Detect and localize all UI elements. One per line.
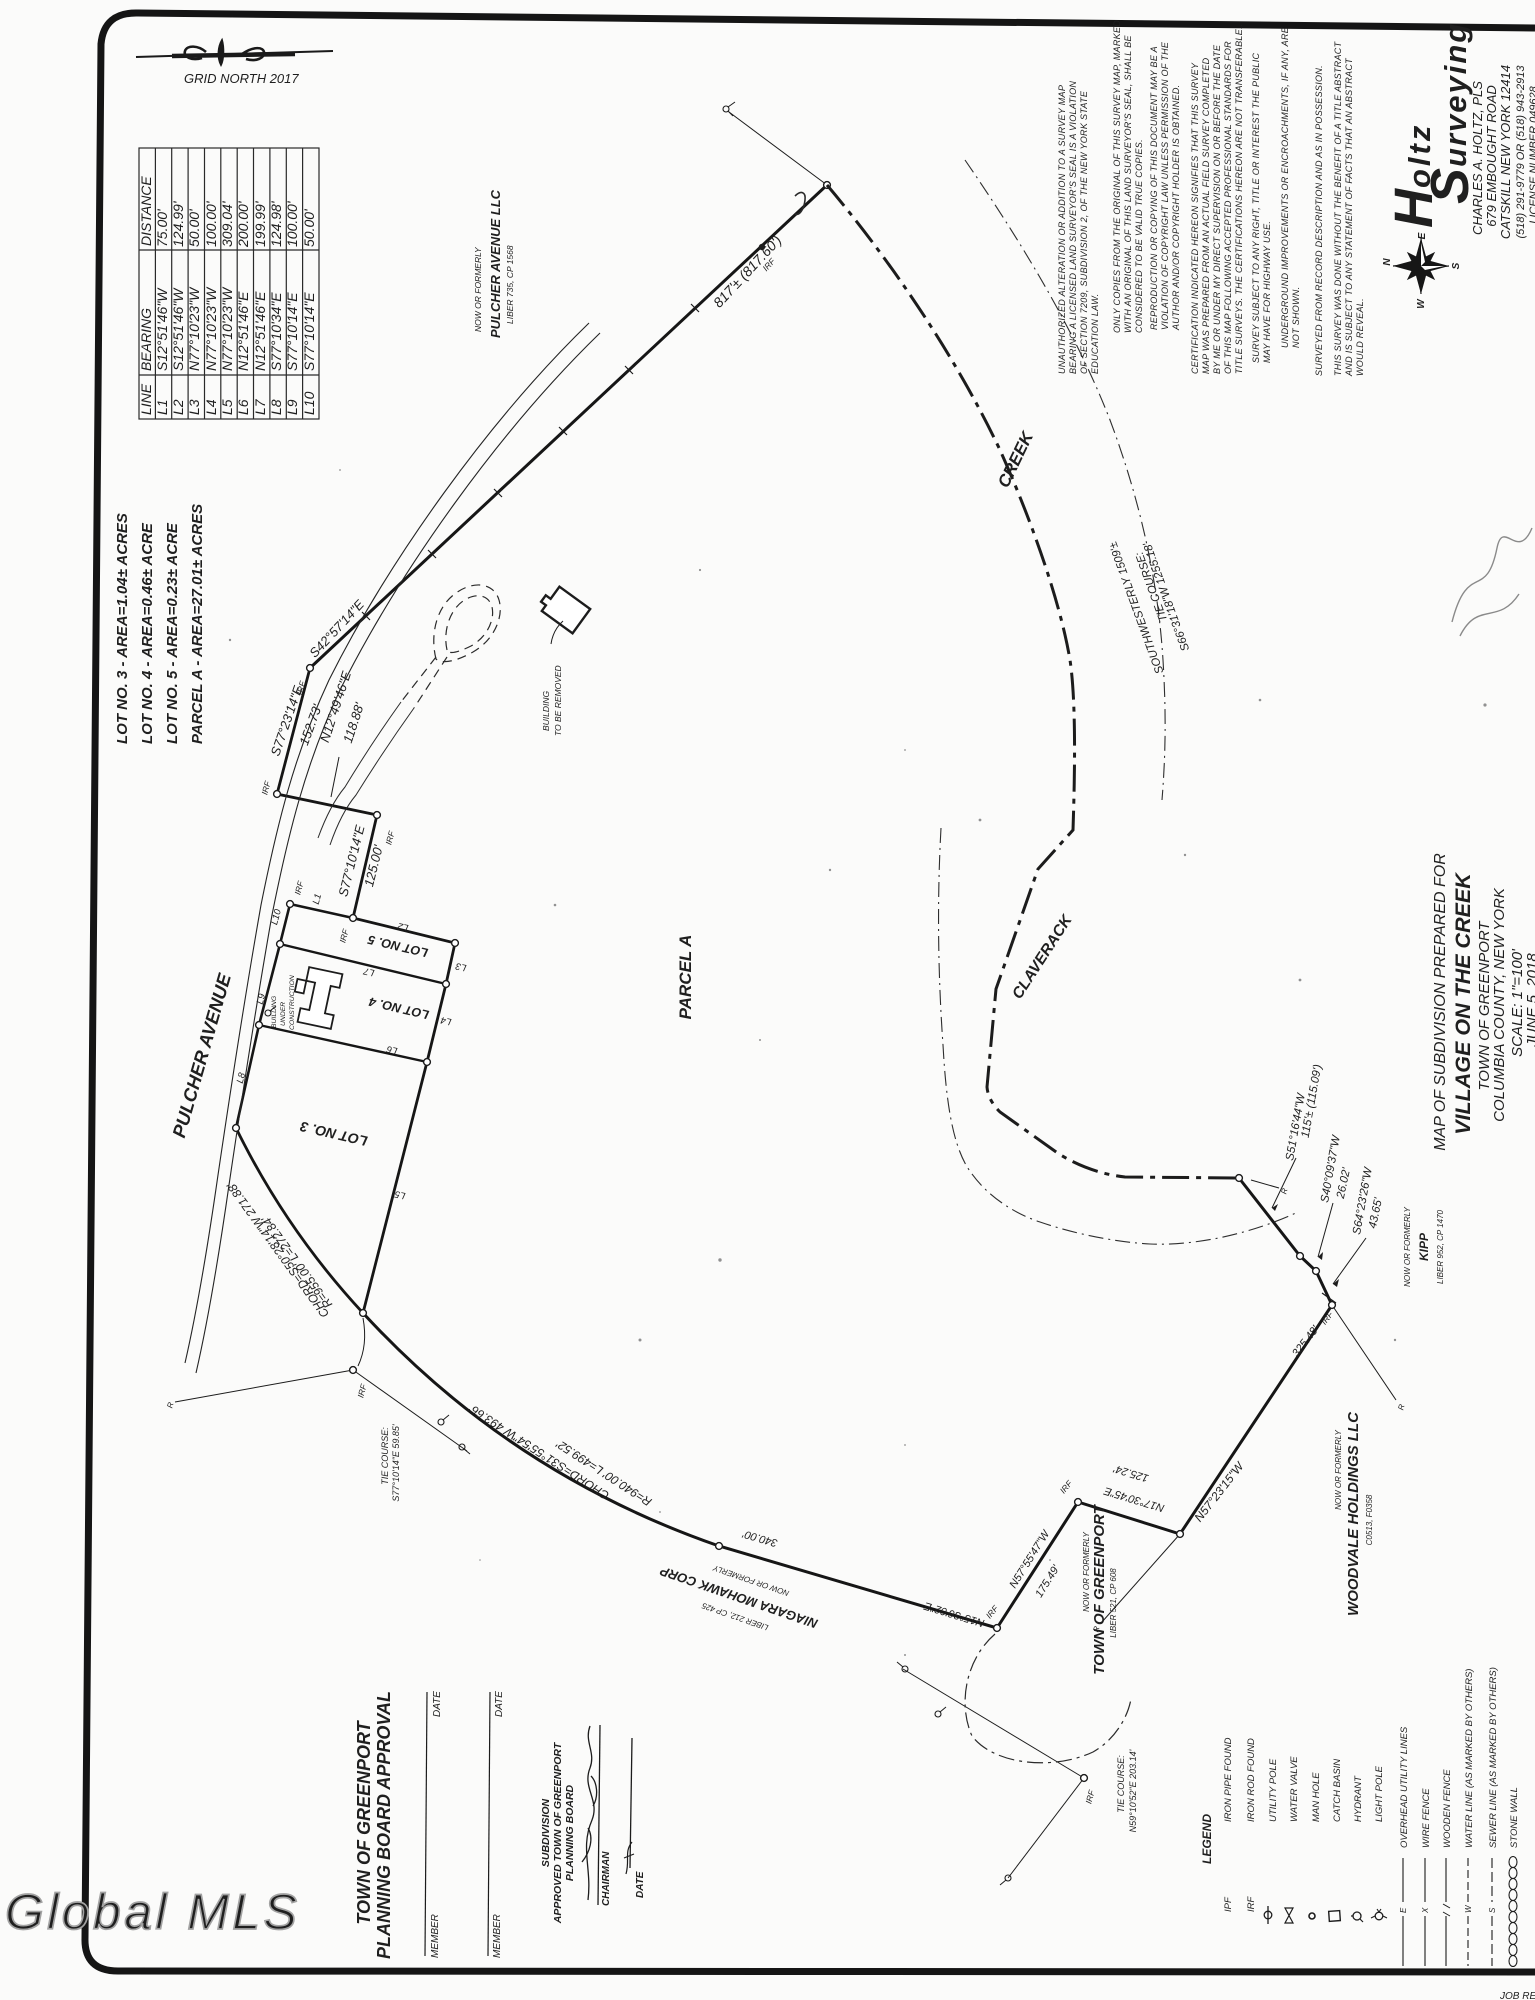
svg-text:E: E — [1399, 1907, 1408, 1913]
svg-text:THIS SURVEY WAS DONE WITHOUT T: THIS SURVEY WAS DONE WITHOUT THE BENEFIT… — [1333, 40, 1343, 376]
svg-text:S: S — [1488, 1907, 1497, 1913]
svg-text:(518) 291-9779 OR (518) 943-29: (518) 291-9779 OR (518) 943-2913 — [1515, 65, 1527, 239]
svg-text:VILLAGE ON THE CREEK: VILLAGE ON THE CREEK — [1451, 872, 1475, 1135]
svg-text:CATCH BASIN: CATCH BASIN — [1332, 1759, 1343, 1822]
svg-text:JOB REFERENCE #2 DC0416: JOB REFERENCE #2 DC0416 — [1499, 1991, 1535, 2000]
svg-text:CHAIRMAN: CHAIRMAN — [601, 1851, 612, 1906]
svg-text:L7: L7 — [252, 398, 268, 415]
svg-text:TIE COURSE:: TIE COURSE: — [1116, 1755, 1126, 1813]
svg-text:MAP WAS PREPARED FROM AN ACTUA: MAP WAS PREPARED FROM AN ACTUAL FIELD SU… — [1201, 57, 1211, 374]
svg-text:LOT NO. 5 - AREA=0.23± ACRE: LOT NO. 5 - AREA=0.23± ACRE — [164, 522, 181, 744]
svg-text:LOT NO. 3 - AREA=1.04± ACRES: LOT NO. 3 - AREA=1.04± ACRES — [114, 513, 131, 744]
svg-text:CONSTRUCTION: CONSTRUCTION — [289, 975, 296, 1030]
svg-text:679 EMBOUGHT ROAD: 679 EMBOUGHT ROAD — [1484, 85, 1499, 227]
svg-text:AUTHOR AND/OR COPYRIGHT HOLDER: AUTHOR AND/OR COPYRIGHT HOLDER IS OBTAIN… — [1171, 85, 1181, 331]
svg-text:PARCEL A - AREA=27.01± ACRES: PARCEL A - AREA=27.01± ACRES — [189, 504, 206, 744]
svg-text:IRON PIPE FOUND: IRON PIPE FOUND — [1223, 1737, 1234, 1822]
svg-text:AND IS SUBJECT TO ANY STATEMEN: AND IS SUBJECT TO ANY STATEMENT OF FACTS… — [1344, 57, 1354, 377]
svg-text:MEMBER: MEMBER — [430, 1914, 441, 1958]
svg-text:PLANNING BOARD APPROVAL: PLANNING BOARD APPROVAL — [374, 1691, 394, 1959]
svg-text:SURVEYED FROM RECORD DESCRIPTI: SURVEYED FROM RECORD DESCRIPTION AND AS … — [1314, 65, 1324, 376]
svg-text:50.00': 50.00' — [301, 208, 317, 247]
svg-text:DATE: DATE — [494, 1691, 505, 1717]
svg-text:MEMBER: MEMBER — [492, 1914, 503, 1958]
svg-text:S77°10'14"E: S77°10'14"E — [284, 292, 300, 371]
svg-text:MAY HAVE FOR HIGHWAY USE.: MAY HAVE FOR HIGHWAY USE. — [1262, 221, 1272, 363]
svg-text:LEGEND: LEGEND — [1200, 1814, 1214, 1864]
svg-text:REPRODUCTION OR COPYING OF THI: REPRODUCTION OR COPYING OF THIS DOCUMENT… — [1149, 46, 1159, 330]
svg-text:S77°10'34"E: S77°10'34"E — [268, 292, 284, 371]
svg-text:NOT SHOWN.: NOT SHOWN. — [1291, 287, 1301, 349]
svg-text:S77°10'14"E 59.85': S77°10'14"E 59.85' — [391, 1424, 401, 1502]
svg-text:L8: L8 — [268, 399, 284, 415]
svg-text:WOULD REVEAL.: WOULD REVEAL. — [1355, 298, 1365, 376]
svg-text:LICENSE NUMBER 049628: LICENSE NUMBER 049628 — [1528, 85, 1535, 223]
svg-text:N77°10'23"W: N77°10'23"W — [203, 286, 219, 371]
svg-text:CONSIDERED TO BE VALID TRUE CO: CONSIDERED TO BE VALID TRUE COPIES. — [1134, 139, 1144, 333]
svg-text:OVERHEAD UTILITY LINES: OVERHEAD UTILITY LINES — [1399, 1726, 1410, 1848]
svg-text:L5: L5 — [219, 399, 235, 415]
svg-text:LIBER 735, CP 1568: LIBER 735, CP 1568 — [505, 245, 515, 324]
svg-text:COLUMBIA COUNTY, NEW YORK: COLUMBIA COUNTY, NEW YORK — [1491, 887, 1508, 1122]
svg-text:75.00': 75.00' — [154, 208, 170, 247]
svg-text:WOODEN FENCE: WOODEN FENCE — [1442, 1769, 1453, 1848]
svg-text:LOT NO. 4 - AREA=0.46± ACRE: LOT NO. 4 - AREA=0.46± ACRE — [139, 522, 156, 744]
svg-text:NOW OR FORMERLY: NOW OR FORMERLY — [1403, 1206, 1412, 1286]
svg-text:Global MLS: Global MLS — [5, 1884, 300, 1940]
svg-text:UNDER: UNDER — [280, 1002, 287, 1026]
svg-text:PLANNING BOARD: PLANNING BOARD — [564, 1784, 576, 1881]
svg-text:WITH AN ORIGINAL OF THIS LAND: WITH AN ORIGINAL OF THIS LAND SURVEYOR'S… — [1123, 35, 1133, 333]
svg-text:JUNE 5, 2018: JUNE 5, 2018 — [1524, 953, 1535, 1048]
svg-text:LINE: LINE — [138, 383, 154, 415]
svg-text:ONLY COPIES FROM THE ORIGINAL: ONLY COPIES FROM THE ORIGINAL OF THIS SU… — [1112, 20, 1122, 333]
svg-text:EDUCATION LAW.: EDUCATION LAW. — [1090, 293, 1100, 374]
svg-text:S: S — [1451, 262, 1462, 269]
svg-text:N77°10'23"W: N77°10'23"W — [219, 286, 235, 371]
svg-text:LIBER 521, CP 608: LIBER 521, CP 608 — [1109, 1568, 1118, 1638]
svg-text:N12°51'46"E: N12°51'46"E — [252, 291, 268, 371]
svg-text:MAN HOLE: MAN HOLE — [1311, 1772, 1322, 1822]
svg-text:E: E — [1417, 232, 1428, 239]
svg-text:N: N — [1382, 258, 1393, 266]
svg-text:GRID NORTH 2017: GRID NORTH 2017 — [184, 71, 299, 86]
svg-text:IRF: IRF — [1246, 1896, 1257, 1913]
svg-text:MAP OF SUBDIVISION PREPARED FO: MAP OF SUBDIVISION PREPARED FOR — [1432, 853, 1449, 1151]
svg-text:WIRE FENCE: WIRE FENCE — [1421, 1788, 1432, 1848]
svg-text:PARCEL A: PARCEL A — [676, 935, 695, 1020]
svg-text:IPF: IPF — [1223, 1896, 1234, 1912]
svg-text:S12°51'46"W: S12°51'46"W — [154, 287, 170, 371]
svg-text:L4: L4 — [203, 399, 219, 415]
svg-text:X: X — [1421, 1907, 1430, 1914]
svg-text:UNDERGROUND IMPROVEMENTS OR EN: UNDERGROUND IMPROVEMENTS OR ENCROACHMENT… — [1280, 26, 1290, 348]
svg-text:L6: L6 — [235, 399, 251, 415]
svg-text:BUILDING: BUILDING — [271, 996, 278, 1028]
svg-text:N59°10'52"E 203.14': N59°10'52"E 203.14' — [1128, 1749, 1138, 1832]
svg-text:199.99': 199.99' — [252, 200, 268, 247]
svg-text:BEARING A LICENSED LAND SURVEY: BEARING A LICENSED LAND SURVEYOR'S SEAL … — [1068, 81, 1078, 374]
svg-text:N77°10'23"W: N77°10'23"W — [186, 286, 202, 371]
svg-text:WATER VALVE: WATER VALVE — [1289, 1756, 1300, 1822]
svg-text:CATSKILL NEW YORK 12414: CATSKILL NEW YORK 12414 — [1498, 65, 1513, 239]
svg-text:TITLE SURVEYS. THE CERTIFICAT: TITLE SURVEYS. THE CERTIFICATIONS HEREON… — [1234, 23, 1244, 374]
svg-text:200.00': 200.00' — [235, 200, 251, 248]
svg-text:NOW OR FORMERLY: NOW OR FORMERLY — [1082, 1531, 1091, 1611]
svg-text:UNAUTHORIZED ALTERATION OR ADD: UNAUTHORIZED ALTERATION OR ADDITION TO A… — [1057, 85, 1067, 374]
svg-text:BEARING: BEARING — [138, 308, 154, 371]
svg-text:L3: L3 — [186, 399, 202, 415]
svg-text:WOODVALE HOLDINGS LLC: WOODVALE HOLDINGS LLC — [1345, 1411, 1362, 1616]
svg-text:N12°51'46"E: N12°51'46"E — [235, 291, 251, 371]
svg-text:TO BE REMOVED: TO BE REMOVED — [553, 665, 563, 736]
svg-text:CHARLES A. HOLTZ, PLS: CHARLES A. HOLTZ, PLS — [1470, 81, 1485, 235]
svg-text:DATE: DATE — [635, 1871, 646, 1898]
svg-text:TOWN OF GREENPORT: TOWN OF GREENPORT — [1091, 1503, 1108, 1674]
svg-text:L10: L10 — [301, 391, 317, 415]
svg-text:L9: L9 — [284, 399, 300, 415]
svg-text:TOWN OF GREENPORT: TOWN OF GREENPORT — [354, 1719, 374, 1924]
svg-text:NOW OR FORMERLY: NOW OR FORMERLY — [473, 246, 483, 332]
svg-text:BUILDING: BUILDING — [541, 690, 551, 731]
svg-text:C0513, F0358: C0513, F0358 — [1365, 1494, 1374, 1545]
svg-text:LIGHT POLE: LIGHT POLE — [1374, 1765, 1385, 1822]
svg-text:HYDRANT: HYDRANT — [1353, 1775, 1364, 1822]
svg-text:NOW OR FORMERLY: NOW OR FORMERLY — [1334, 1429, 1343, 1509]
svg-text:SEWER LINE (AS MARKED BY OTHER: SEWER LINE (AS MARKED BY OTHERS) — [1488, 1667, 1499, 1848]
svg-text:W: W — [1416, 298, 1427, 309]
svg-text:100.00': 100.00' — [203, 200, 219, 247]
svg-text:DISTANCE: DISTANCE — [138, 176, 154, 246]
svg-text:L1: L1 — [154, 399, 170, 415]
svg-text:S12°51'46"W: S12°51'46"W — [170, 287, 186, 371]
svg-text:BY ME OR UNDER MY DIRECT SUPER: BY ME OR UNDER MY DIRECT SUPERVISION ON … — [1212, 44, 1222, 374]
svg-text:IRON ROD FOUND: IRON ROD FOUND — [1246, 1738, 1257, 1822]
svg-text:CERTIFICATION INDICATED HEREON: CERTIFICATION INDICATED HEREON SIGNIFIES… — [1190, 62, 1200, 374]
svg-text:124.98': 124.98' — [268, 200, 284, 247]
svg-text:50.00': 50.00' — [186, 208, 202, 247]
svg-text:100.00': 100.00' — [284, 200, 300, 247]
svg-text:SUBDIVISION: SUBDIVISION — [540, 1798, 552, 1867]
svg-text:TIE COURSE:: TIE COURSE: — [380, 1427, 390, 1485]
svg-text:KIPP: KIPP — [1417, 1232, 1431, 1261]
svg-text:124.99': 124.99' — [170, 200, 186, 247]
svg-text:309.04': 309.04' — [219, 200, 235, 247]
svg-text:S77°10'14"E: S77°10'14"E — [301, 292, 317, 371]
svg-text:DATE: DATE — [432, 1691, 443, 1717]
svg-text:UTILITY POLE: UTILITY POLE — [1268, 1758, 1279, 1822]
svg-text:STONE WALL: STONE WALL — [1509, 1787, 1520, 1848]
svg-text:OF SECTION 7209, SUBDIVISION 2: OF SECTION 7209, SUBDIVISION 2, OF THE N… — [1079, 90, 1089, 374]
svg-text:PULCHER AVENUE LLC: PULCHER AVENUE LLC — [488, 189, 503, 338]
svg-text:OF THIS MAP FOLLOWING ACCEPTED: OF THIS MAP FOLLOWING ACCEPTED PROFESSIO… — [1223, 41, 1233, 374]
svg-text:APPROVED TOWN OF GREENPORT: APPROVED TOWN OF GREENPORT — [552, 1741, 564, 1924]
svg-text:LIBER 952, CP 1470: LIBER 952, CP 1470 — [1436, 1209, 1445, 1284]
svg-text:L2: L2 — [170, 399, 186, 415]
svg-text:SURVEY SUBJECT TO ANY RIGHT, T: SURVEY SUBJECT TO ANY RIGHT, TITLE OR IN… — [1251, 52, 1261, 363]
svg-text:VIOLATION OF COPYRIGHT LAW UNL: VIOLATION OF COPYRIGHT LAW UNLESS PERMIS… — [1160, 41, 1170, 330]
svg-text:WATER LINE (AS MARKED BY OTHER: WATER LINE (AS MARKED BY OTHERS) — [1464, 1669, 1475, 1848]
